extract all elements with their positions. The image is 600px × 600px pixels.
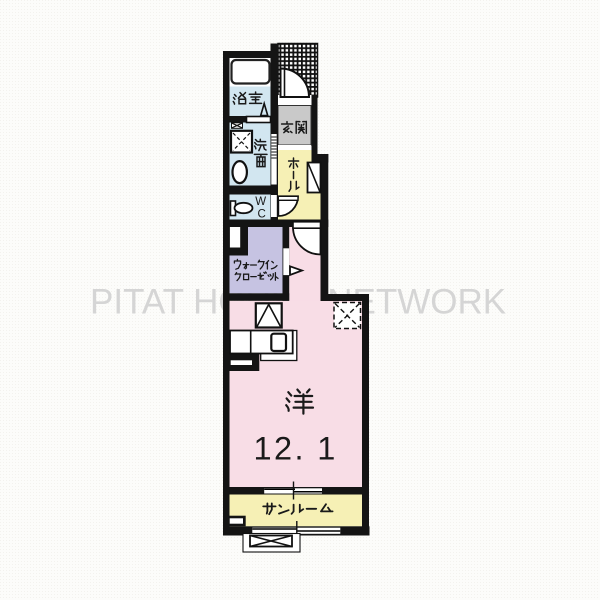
svg-text:12. 1: 12. 1 <box>254 431 338 467</box>
svg-text:W: W <box>255 196 266 208</box>
svg-text:C: C <box>258 209 266 221</box>
